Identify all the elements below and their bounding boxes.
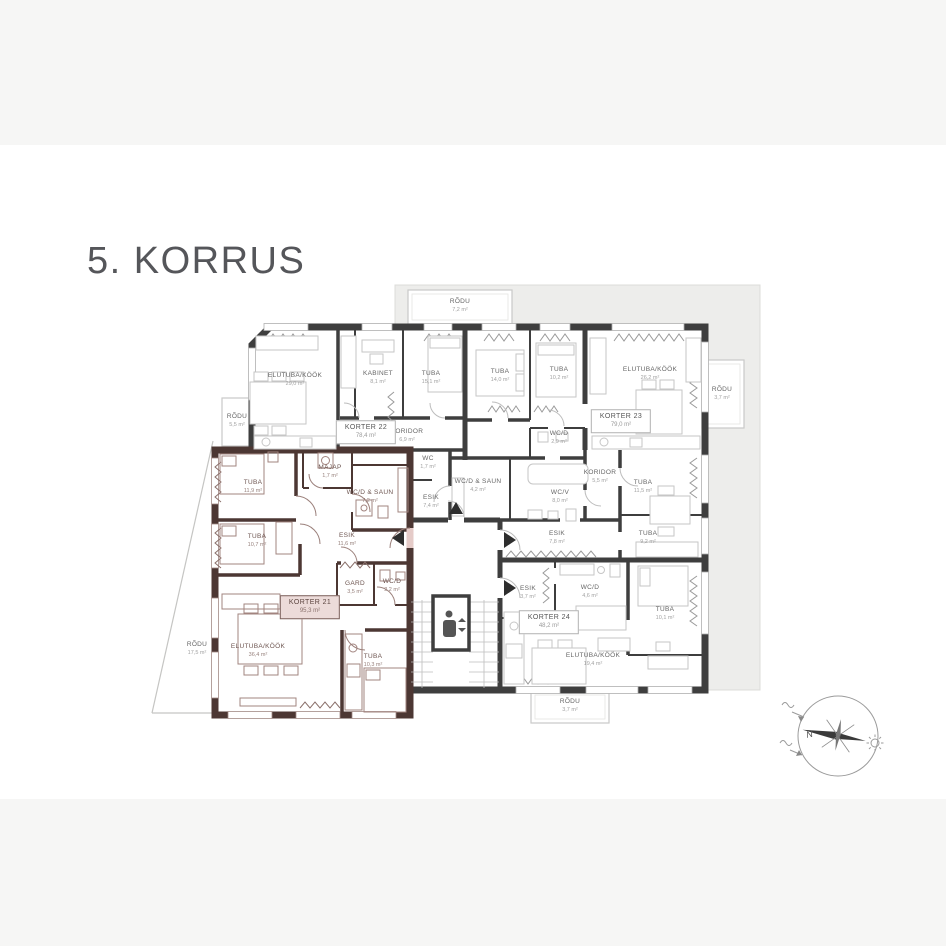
floor-plan-page: 5. KORRUS xyxy=(0,0,946,946)
apartment-24-region[interactable] xyxy=(500,560,705,690)
apartment-23-region[interactable] xyxy=(465,327,705,560)
north-label: N xyxy=(805,729,814,740)
sun-icon xyxy=(867,735,884,752)
elevator xyxy=(433,596,469,650)
apartment-22-region[interactable] xyxy=(252,327,465,520)
property-line xyxy=(152,441,215,713)
compass-icon: N xyxy=(780,696,884,776)
staircase xyxy=(411,596,499,688)
